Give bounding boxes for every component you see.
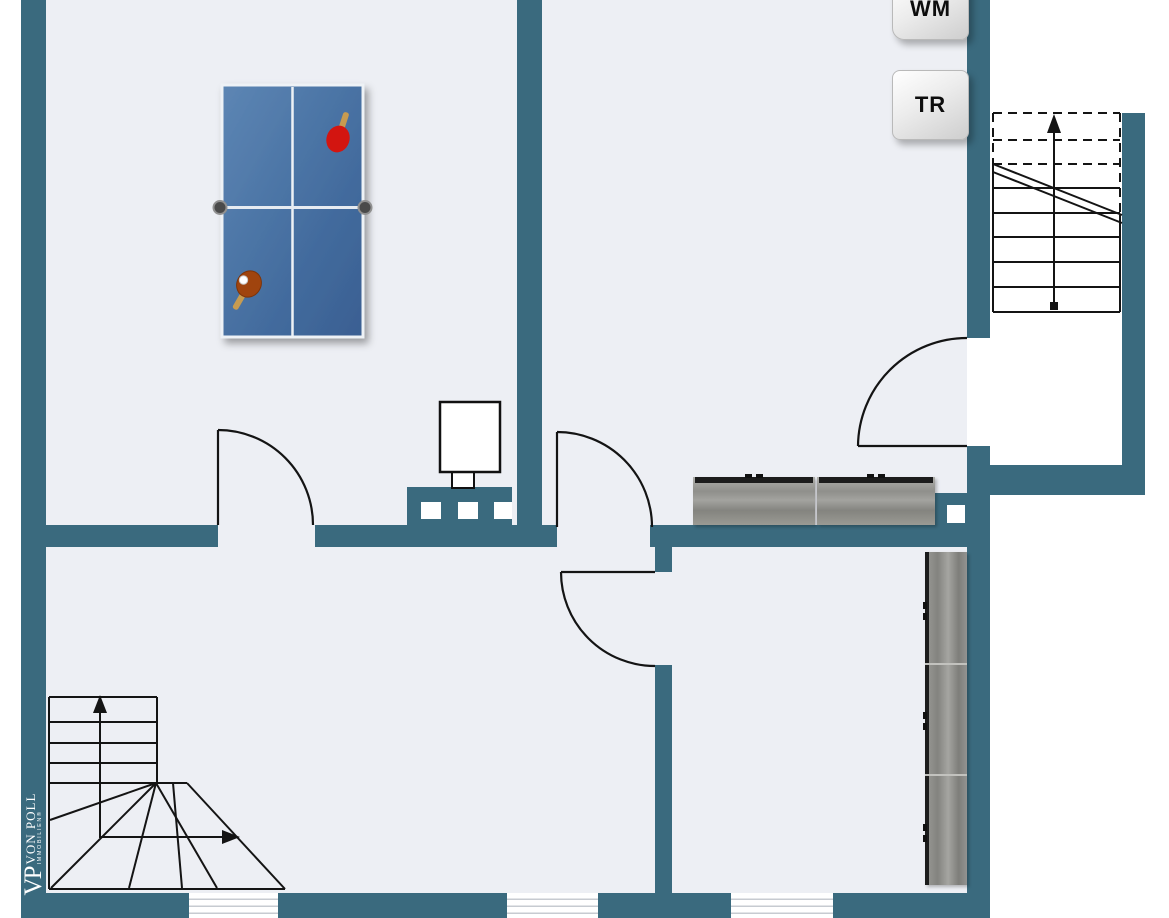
wardrobe-divider — [925, 663, 967, 665]
dryer-label: TR — [915, 92, 946, 118]
shaft-opening — [947, 505, 965, 523]
apartment-floor — [46, 0, 967, 893]
sideboard-knob — [745, 474, 752, 478]
wall-stairhall-right — [1122, 113, 1145, 495]
wall-stairhall-bottom — [967, 465, 1145, 495]
wall-horizontal-b — [315, 525, 557, 547]
wardrobe-divider — [925, 774, 967, 776]
wardrobe — [925, 552, 967, 885]
floor-plan-canvas: WM TR — [0, 0, 1169, 918]
knee-wall-opening-3 — [494, 502, 512, 519]
sideboard-top-edge — [695, 477, 813, 483]
wall-right-upper — [967, 0, 990, 338]
wardrobe-knob — [923, 835, 927, 842]
wardrobe-knob — [923, 723, 927, 730]
wall-horizontal-a — [46, 525, 218, 547]
sideboard-knob — [756, 474, 763, 478]
stair-break-line — [993, 164, 1122, 215]
wardrobe-knob — [923, 602, 927, 609]
wardrobe-knob — [923, 824, 927, 831]
walk-line-arrow-up — [1047, 114, 1061, 133]
window-bottom-right — [731, 893, 833, 918]
stair-break-line — [993, 172, 1122, 223]
window-bottom-left — [189, 893, 278, 918]
knee-wall-opening-1 — [421, 502, 441, 519]
stair-cut-dashed-steps — [993, 113, 1120, 215]
wall-horizontal-c — [650, 525, 990, 547]
sideboard-top-edge — [819, 477, 933, 483]
sideboard-segment-2 — [817, 477, 935, 525]
brand-monogram: VP — [21, 867, 46, 895]
walk-line-start — [1050, 302, 1058, 310]
brand-subtitle: IMMOBILIEN® — [38, 810, 44, 864]
wardrobe-knob — [923, 613, 927, 620]
knee-wall-opening-2 — [458, 502, 478, 519]
brand-logo: VP VON POLL IMMOBILIEN® — [21, 779, 46, 909]
brand-watermark: VP VON POLL IMMOBILIEN® — [21, 779, 46, 909]
wall-rooms-divider-lower — [655, 665, 672, 893]
wall-rooms-divider-upper — [655, 547, 672, 572]
sideboard-knob — [867, 474, 874, 478]
wardrobe-knob — [923, 712, 927, 719]
washing-machine: WM — [892, 0, 969, 40]
sideboard-knob — [878, 474, 885, 478]
window-bottom-middle — [507, 893, 598, 918]
sideboard-segment-1 — [693, 477, 815, 525]
washing-machine-label: WM — [910, 0, 951, 22]
brand-name: VON POLL — [24, 793, 37, 865]
wall-mid-vertical — [517, 0, 542, 547]
wall-bottom — [21, 893, 990, 918]
wall-right-lower — [967, 446, 990, 893]
staircase-upper-right — [993, 113, 1122, 312]
dryer: TR — [892, 70, 969, 140]
